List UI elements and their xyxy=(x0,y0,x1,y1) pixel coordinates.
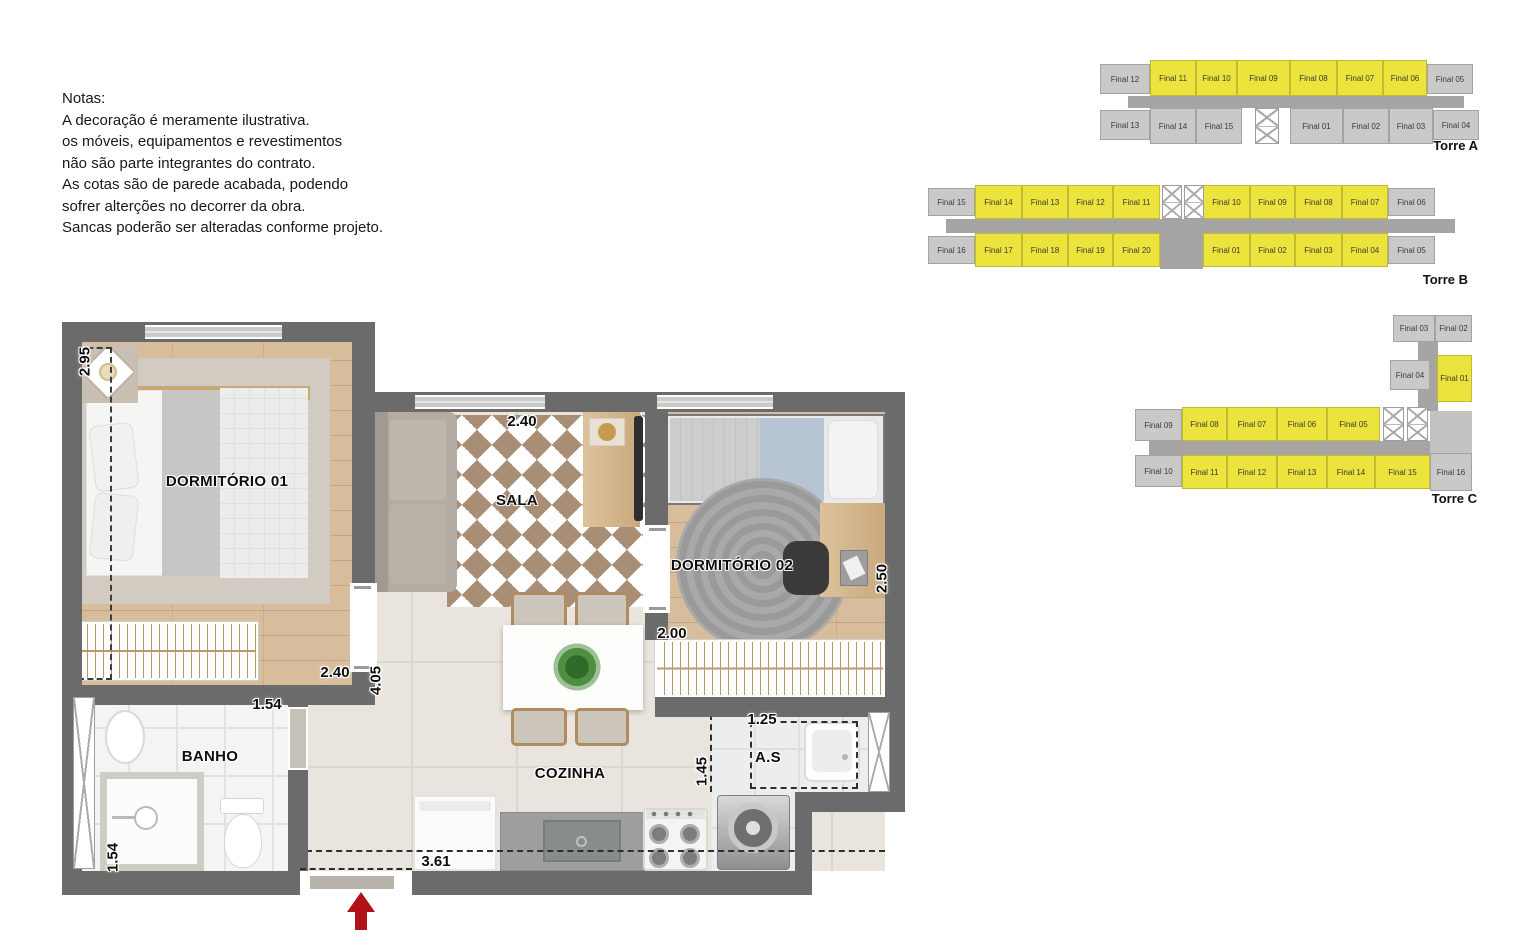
elevator-icon xyxy=(1162,185,1182,219)
tower-unit: Final 13 xyxy=(1100,110,1150,140)
sofa-cushion xyxy=(390,420,446,500)
elevator-cell xyxy=(1163,203,1181,219)
tower-unit: Final 04 xyxy=(1433,110,1479,140)
tower-unit: Final 09 xyxy=(1237,60,1290,96)
wall xyxy=(795,792,905,812)
elevator-cell xyxy=(1256,109,1278,127)
flower-decor xyxy=(598,423,616,441)
entry-door-leaf xyxy=(308,874,396,891)
room-label-cozinha: COZINHA xyxy=(530,765,610,782)
stove-burner xyxy=(680,824,700,844)
tower-unit: Final 16 xyxy=(1430,453,1472,491)
tower-unit: Final 18 xyxy=(1022,233,1068,267)
tower-unit: Final 09 xyxy=(1250,185,1295,219)
tower-unit: Final 16 xyxy=(928,236,975,264)
tower-unit: Final 07 xyxy=(1227,407,1277,441)
dim-2-00: 2.00 xyxy=(650,625,694,642)
stove-burner xyxy=(649,824,669,844)
tower-unit: Final 12 xyxy=(1100,64,1150,94)
tower-unit: Final 06 xyxy=(1277,407,1327,441)
tower-unit: Final 07 xyxy=(1337,60,1383,96)
tower-unit: Final 07 xyxy=(1342,185,1388,219)
tower-corridor xyxy=(1149,441,1467,455)
tower-unit: Final 03 xyxy=(1389,108,1433,144)
elevator-cell xyxy=(1384,425,1403,441)
bedroom1-window xyxy=(145,325,282,339)
dimension-guide-dashed xyxy=(78,347,112,680)
tower-unit: Final 06 xyxy=(1383,60,1427,96)
notes-line: não são parte integrantes do contrato. xyxy=(62,153,422,175)
notes-title: Notas: xyxy=(62,88,422,110)
elevator-cell xyxy=(1163,186,1181,203)
torre-a-keyplan: Torre A Final 12Final 11Final 10Final 09… xyxy=(1100,60,1490,155)
notes-block: Notas: A decoração é meramente ilustrati… xyxy=(62,88,422,239)
wall xyxy=(352,342,375,583)
elevator-icon xyxy=(1184,185,1204,219)
sofa-back xyxy=(375,412,388,592)
tv xyxy=(634,416,643,521)
fridge-handle xyxy=(419,801,491,811)
wall xyxy=(645,392,668,525)
notes-line: os móveis, equipamentos e revestimentos xyxy=(62,131,422,153)
tower-unit: Final 03 xyxy=(1295,233,1342,267)
bedroom2-window xyxy=(657,395,773,409)
elevator-cell xyxy=(1256,127,1278,144)
entry-arrow-stem xyxy=(355,911,367,930)
wall xyxy=(62,871,812,895)
tower-unit: Final 06 xyxy=(1388,188,1435,216)
tower-unit: Final 04 xyxy=(1342,233,1388,267)
tower-unit: Final 11 xyxy=(1182,455,1227,489)
tower-unit: Final 13 xyxy=(1022,185,1068,219)
torre-c-keyplan: Torre C Final 03Final 02Final 04Final 01… xyxy=(1135,315,1485,507)
dim-door-2-40: 2.40 xyxy=(313,664,357,681)
shower-arm xyxy=(112,816,136,819)
tower-corridor xyxy=(1430,411,1472,455)
elevator-cell xyxy=(1408,408,1427,425)
room-label-banho: BANHO xyxy=(170,748,250,765)
toilet-tank xyxy=(220,798,264,814)
tower-unit: Final 10 xyxy=(1135,455,1182,487)
bed2-pillow xyxy=(828,420,878,499)
elevator-icon xyxy=(1407,407,1428,441)
dim-1-45: 1.45 xyxy=(694,750,711,794)
tower-unit: Final 13 xyxy=(1277,455,1327,489)
room-label-dorm2: DORMITÓRIO 02 xyxy=(662,557,802,574)
dim-banho-1-54b: 1.54 xyxy=(105,836,122,880)
tower-unit: Final 04 xyxy=(1390,360,1430,390)
tower-unit: Final 14 xyxy=(1327,455,1375,489)
dining-chair xyxy=(511,708,567,746)
dining-chair xyxy=(575,708,629,746)
dim-banho-1-54: 1.54 xyxy=(245,696,289,713)
tower-unit: Final 10 xyxy=(1196,60,1237,96)
dim-2-95: 2.95 xyxy=(77,342,94,382)
elevator-cell xyxy=(1185,186,1203,203)
dim-sala-2-40: 2.40 xyxy=(502,413,542,430)
elevator-cell xyxy=(1185,203,1203,219)
tower-unit: Final 10 xyxy=(1203,185,1250,219)
room-label-as: A.S xyxy=(743,749,793,766)
shower-head xyxy=(134,806,158,830)
tower-unit: Final 12 xyxy=(1227,455,1277,489)
door-hinge xyxy=(649,607,666,610)
room-label-dorm1: DORMITÓRIO 01 xyxy=(152,473,302,490)
tower-unit: Final 08 xyxy=(1295,185,1342,219)
door-hinge xyxy=(354,586,371,589)
dim-2-50: 2.50 xyxy=(874,557,891,601)
dim-4-05: 4.05 xyxy=(368,659,385,703)
tower-unit: Final 12 xyxy=(1068,185,1113,219)
torre-b-label: Torre B xyxy=(1398,272,1468,287)
tower-unit: Final 11 xyxy=(1113,185,1160,219)
tower-unit: Final 19 xyxy=(1068,233,1113,267)
tower-unit: Final 15 xyxy=(1196,108,1242,144)
torre-c-label: Torre C xyxy=(1407,491,1477,506)
faucet xyxy=(576,836,587,847)
tower-unit: Final 01 xyxy=(1290,108,1343,144)
tower-unit: Final 02 xyxy=(1435,315,1472,342)
sala-window xyxy=(415,395,545,409)
bedroom2-wardrobe xyxy=(655,640,885,697)
tower-unit: Final 05 xyxy=(1427,64,1473,94)
notes-line: As cotas são de parede acabada, podendo xyxy=(62,174,422,196)
notes-line: Sancas poderão ser alteradas conforme pr… xyxy=(62,217,422,239)
tower-unit: Final 08 xyxy=(1290,60,1337,96)
tower-corridor xyxy=(1160,219,1203,269)
tower-unit: Final 08 xyxy=(1182,407,1227,441)
notes-line: A decoração é meramente ilustrativa. xyxy=(62,110,422,132)
tower-unit: Final 20 xyxy=(1113,233,1160,267)
tower-corridor xyxy=(1128,96,1464,108)
elevator-cell xyxy=(1384,408,1403,425)
service-window xyxy=(868,712,890,792)
room-label-sala: SALA xyxy=(487,492,547,509)
tower-unit: Final 05 xyxy=(1388,236,1435,264)
elevator-cell xyxy=(1408,425,1427,441)
bathroom-window xyxy=(73,697,95,869)
tower-unit: Final 02 xyxy=(1343,108,1389,144)
bathroom-door xyxy=(288,707,308,770)
wall xyxy=(62,685,375,705)
washer-center xyxy=(746,821,760,835)
dim-3-61: 3.61 xyxy=(414,853,458,870)
tower-unit: Final 09 xyxy=(1135,409,1182,441)
entry-dashed xyxy=(300,868,412,870)
elevator-icon xyxy=(1383,407,1404,441)
sofa-cushion xyxy=(390,504,446,584)
elevator-icon xyxy=(1255,108,1279,144)
tower-unit: Final 14 xyxy=(1150,108,1196,144)
tower-unit: Final 14 xyxy=(975,185,1022,219)
notes-line: sofrer alterções no decorrer da obra. xyxy=(62,196,422,218)
tower-unit: Final 03 xyxy=(1393,315,1435,342)
dim-1-25: 1.25 xyxy=(740,711,784,728)
plant xyxy=(551,641,603,693)
stove-knobs xyxy=(646,810,705,819)
door-hinge xyxy=(649,528,666,531)
tower-unit: Final 05 xyxy=(1327,407,1380,441)
tower-unit: Final 17 xyxy=(975,233,1022,267)
toilet-bowl xyxy=(224,814,262,868)
bathroom-sink xyxy=(105,710,145,764)
tower-unit: Final 02 xyxy=(1250,233,1295,267)
torre-b-keyplan: Torre B Final 15Final 14Final 13Final 12… xyxy=(928,185,1473,287)
tower-unit: Final 15 xyxy=(928,188,975,216)
tower-unit: Final 01 xyxy=(1437,355,1472,402)
tower-unit: Final 15 xyxy=(1375,455,1430,489)
floor-plan: DORMITÓRIO 01 SALA DORMITÓRIO 02 BANHO C… xyxy=(62,322,905,895)
tower-unit: Final 11 xyxy=(1150,60,1196,96)
entry-arrow-icon xyxy=(347,892,375,912)
tower-unit: Final 01 xyxy=(1203,233,1250,267)
